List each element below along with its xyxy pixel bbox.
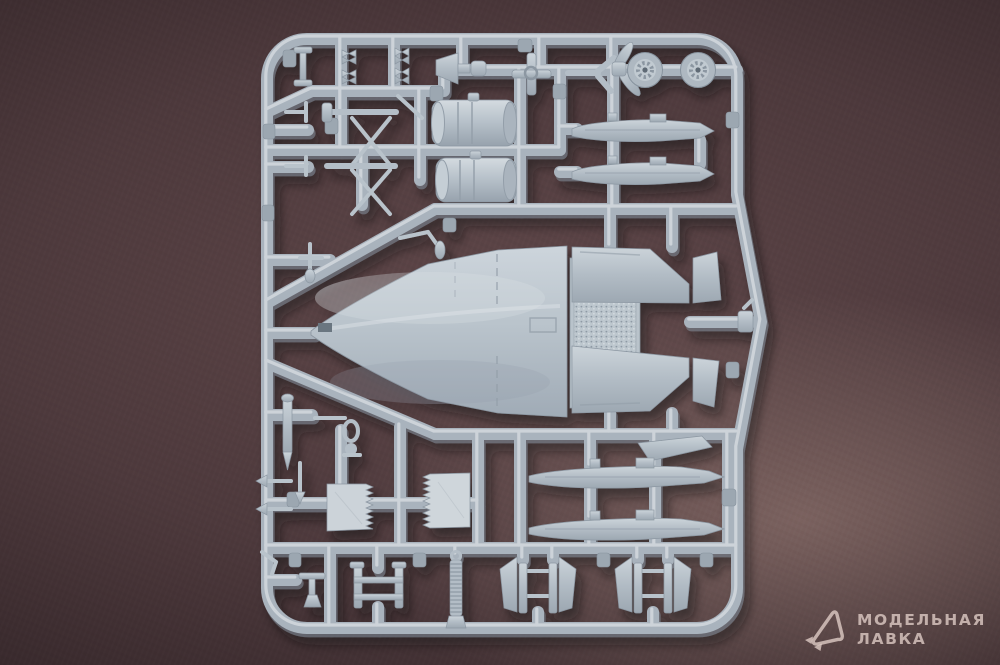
watermark: МОДЕЛЬНАЯ ЛАВКА bbox=[802, 607, 986, 653]
part-tank-half-1 bbox=[572, 113, 714, 142]
part-gear-door-set-1 bbox=[500, 557, 576, 613]
watermark-line1: МОДЕЛЬНАЯ bbox=[857, 611, 986, 630]
part-tank-half-4 bbox=[529, 510, 724, 540]
watermark-line2: ЛАВКА bbox=[857, 630, 986, 649]
part-tank-half-3 bbox=[529, 458, 724, 488]
part-engine-can-2 bbox=[436, 151, 517, 202]
part-tank-half-2 bbox=[572, 156, 714, 185]
part-hook-link bbox=[344, 421, 360, 455]
paper-plane-icon bbox=[802, 607, 848, 653]
part-wheel-1 bbox=[628, 53, 663, 88]
sprue-group bbox=[256, 36, 763, 631]
part-engine-can-1 bbox=[432, 93, 517, 146]
part-dumbbell-pin bbox=[294, 47, 312, 86]
part-rear-deck-upper bbox=[572, 247, 721, 303]
part-wheel-2 bbox=[681, 53, 716, 88]
model-kit-sprue bbox=[0, 0, 1000, 665]
part-speedbrake-panel-2 bbox=[423, 473, 470, 528]
photo-canvas: МОДЕЛЬНАЯ ЛАВКА bbox=[0, 0, 1000, 665]
part-speedbrake-panel-1 bbox=[327, 484, 373, 531]
part-t-stand bbox=[299, 573, 325, 607]
part-rear-deck-lower bbox=[572, 346, 719, 413]
part-gear-door-set-2 bbox=[615, 557, 691, 613]
watermark-text: МОДЕЛЬНАЯ ЛАВКА bbox=[857, 611, 986, 650]
part-corrugated-hose bbox=[446, 552, 466, 629]
part-upper-fuselage bbox=[311, 246, 567, 417]
part-apex-connector bbox=[738, 300, 753, 332]
